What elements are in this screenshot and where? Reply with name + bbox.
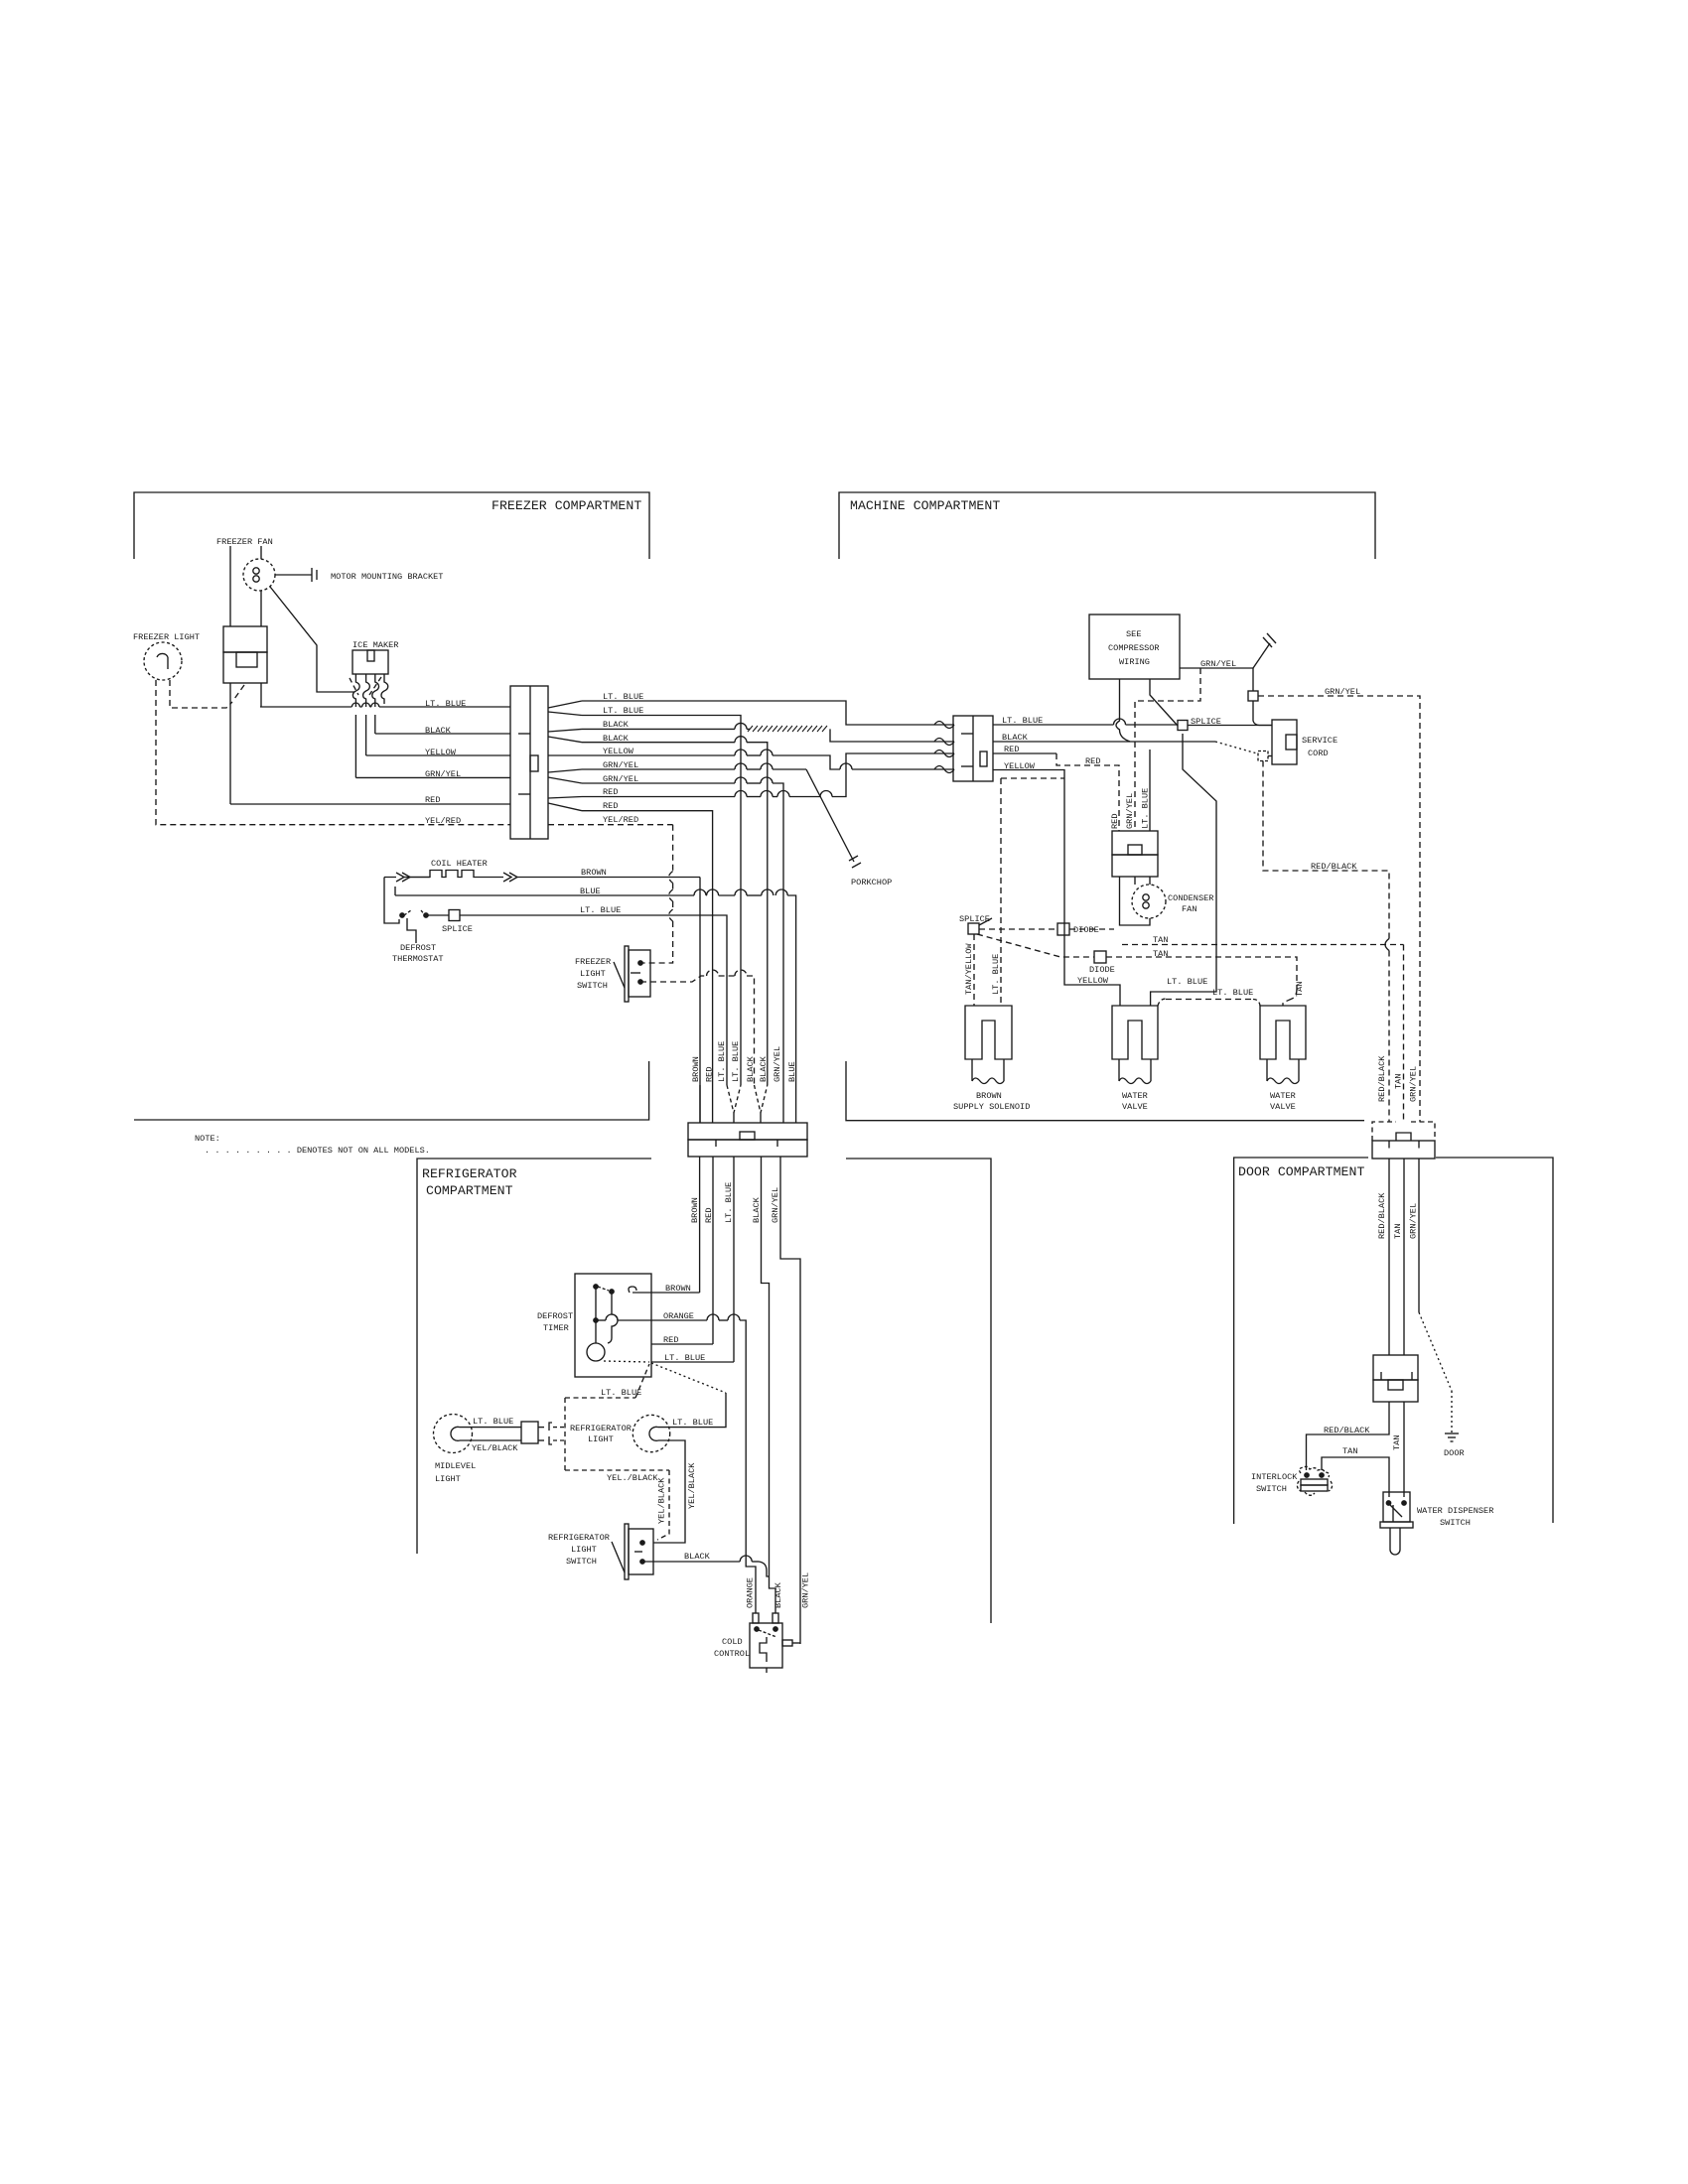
svg-text:BLUE: BLUE bbox=[787, 1061, 797, 1082]
svg-text:REFRIGERATOR: REFRIGERATOR bbox=[570, 1424, 632, 1433]
svg-text:BLACK: BLACK bbox=[684, 1552, 711, 1562]
svg-text:LT. BLUE: LT. BLUE bbox=[603, 706, 643, 716]
svg-text:YEL/BLACK: YEL/BLACK bbox=[472, 1443, 518, 1453]
svg-text:TAN: TAN bbox=[1393, 1224, 1403, 1239]
svg-text:WATER: WATER bbox=[1270, 1091, 1296, 1101]
svg-text:DEFROST: DEFROST bbox=[537, 1311, 573, 1321]
svg-text:RED: RED bbox=[1110, 814, 1120, 829]
svg-text:TAN/YELLOW: TAN/YELLOW bbox=[964, 943, 974, 995]
svg-text:RED: RED bbox=[603, 787, 618, 797]
svg-text:REFRIGERATOR: REFRIGERATOR bbox=[548, 1533, 610, 1543]
svg-text:TAN: TAN bbox=[1392, 1435, 1402, 1450]
svg-text:YEL/RED: YEL/RED bbox=[425, 816, 461, 826]
svg-text:LIGHT: LIGHT bbox=[571, 1545, 597, 1555]
svg-text:GRN/YEL: GRN/YEL bbox=[1409, 1066, 1419, 1102]
svg-text:SERVICE: SERVICE bbox=[1302, 736, 1337, 746]
svg-text:THERMOSTAT: THERMOSTAT bbox=[392, 954, 444, 964]
svg-text:CORD: CORD bbox=[1308, 749, 1329, 758]
svg-text:BLACK: BLACK bbox=[752, 1196, 762, 1223]
svg-text:. . . . . . . . . DENOTES NOT: . . . . . . . . . DENOTES NOT ON ALL MOD… bbox=[205, 1146, 430, 1156]
svg-text:BROWN: BROWN bbox=[581, 868, 607, 878]
svg-text:NOTE:: NOTE: bbox=[195, 1134, 220, 1144]
svg-text:BLACK: BLACK bbox=[746, 1055, 756, 1082]
svg-text:GRN/YEL: GRN/YEL bbox=[1325, 687, 1360, 697]
svg-text:YEL/BLACK: YEL/BLACK bbox=[657, 1477, 667, 1524]
svg-text:LT. BLUE: LT. BLUE bbox=[717, 1041, 727, 1082]
svg-text:CONTROL: CONTROL bbox=[714, 1649, 750, 1659]
svg-text:SWITCH: SWITCH bbox=[1256, 1484, 1287, 1494]
svg-text:YEL./BLACK: YEL./BLACK bbox=[607, 1473, 658, 1483]
svg-text:RED/BLACK: RED/BLACK bbox=[1311, 862, 1357, 872]
svg-text:COIL HEATER: COIL HEATER bbox=[431, 859, 488, 869]
svg-text:FAN: FAN bbox=[1182, 904, 1196, 914]
svg-text:GRN/YEL: GRN/YEL bbox=[801, 1572, 811, 1608]
svg-text:CONDENSER: CONDENSER bbox=[1168, 893, 1213, 903]
svg-text:BLUE: BLUE bbox=[580, 887, 601, 896]
svg-text:WATER DISPENSER: WATER DISPENSER bbox=[1417, 1506, 1493, 1516]
svg-text:COMPRESSOR: COMPRESSOR bbox=[1108, 643, 1160, 653]
svg-text:LT. BLUE: LT. BLUE bbox=[664, 1353, 705, 1363]
svg-text:ICE MAKER: ICE MAKER bbox=[352, 640, 398, 650]
svg-text:WIRING: WIRING bbox=[1119, 657, 1150, 667]
svg-text:GRN/YEL: GRN/YEL bbox=[1200, 659, 1236, 669]
svg-text:SEE: SEE bbox=[1126, 629, 1141, 639]
svg-text:TAN: TAN bbox=[1153, 935, 1168, 945]
svg-text:MOTOR MOUNTING BRACKET: MOTOR MOUNTING BRACKET bbox=[331, 572, 443, 582]
svg-text:LT. BLUE: LT. BLUE bbox=[991, 954, 1001, 995]
svg-text:YEL/RED: YEL/RED bbox=[603, 815, 638, 825]
svg-text:REFRIGERATOR: REFRIGERATOR bbox=[422, 1166, 517, 1181]
svg-text:VALVE: VALVE bbox=[1270, 1102, 1296, 1112]
svg-text:RED/BLACK: RED/BLACK bbox=[1377, 1192, 1387, 1239]
svg-text:DIODE: DIODE bbox=[1073, 925, 1099, 935]
svg-text:FREEZER FAN: FREEZER FAN bbox=[216, 537, 273, 547]
svg-text:SWITCH: SWITCH bbox=[566, 1557, 597, 1567]
svg-text:TAN: TAN bbox=[1295, 982, 1305, 997]
svg-text:RED/BLACK: RED/BLACK bbox=[1377, 1055, 1387, 1102]
svg-text:YELLOW: YELLOW bbox=[1077, 976, 1109, 986]
svg-text:BROWN: BROWN bbox=[690, 1197, 700, 1223]
svg-text:ORANGE: ORANGE bbox=[663, 1311, 694, 1321]
svg-text:MIDLEVEL: MIDLEVEL bbox=[435, 1461, 476, 1471]
svg-text:DIODE: DIODE bbox=[1089, 965, 1115, 975]
svg-text:FREEZER: FREEZER bbox=[575, 957, 611, 967]
svg-text:SPLICE: SPLICE bbox=[442, 924, 473, 934]
svg-text:SUPPLY SOLENOID: SUPPLY SOLENOID bbox=[953, 1102, 1030, 1112]
svg-text:LT. BLUE: LT. BLUE bbox=[580, 905, 621, 915]
svg-text:LIGHT: LIGHT bbox=[435, 1474, 461, 1484]
svg-text:BROWN: BROWN bbox=[691, 1056, 701, 1082]
svg-text:BROWN: BROWN bbox=[976, 1091, 1002, 1101]
svg-text:LT. BLUE: LT. BLUE bbox=[1212, 988, 1253, 998]
svg-text:DEFROST: DEFROST bbox=[400, 943, 436, 953]
svg-text:INTERLOCK: INTERLOCK bbox=[1251, 1472, 1298, 1482]
svg-text:TAN: TAN bbox=[1394, 1074, 1404, 1089]
svg-text:RED: RED bbox=[1085, 756, 1100, 766]
svg-text:COMPARTMENT: COMPARTMENT bbox=[426, 1183, 513, 1198]
svg-text:BLACK: BLACK bbox=[603, 720, 630, 730]
svg-text:RED: RED bbox=[704, 1208, 714, 1223]
svg-text:RED: RED bbox=[603, 801, 618, 811]
svg-text:LIGHT: LIGHT bbox=[580, 969, 606, 979]
svg-text:FREEZER COMPARTMENT: FREEZER COMPARTMENT bbox=[492, 498, 641, 513]
svg-text:TIMER: TIMER bbox=[543, 1323, 569, 1333]
svg-text:SWITCH: SWITCH bbox=[577, 981, 608, 991]
svg-text:GRN/YEL: GRN/YEL bbox=[773, 1046, 782, 1082]
svg-text:WATER: WATER bbox=[1122, 1091, 1148, 1101]
svg-text:COLD: COLD bbox=[722, 1637, 743, 1647]
svg-text:GRN/YEL: GRN/YEL bbox=[771, 1187, 780, 1223]
svg-text:LT. BLUE: LT. BLUE bbox=[672, 1418, 713, 1428]
svg-text:ORANGE: ORANGE bbox=[746, 1577, 756, 1608]
svg-text:LT. BLUE: LT. BLUE bbox=[601, 1388, 641, 1398]
svg-text:DOOR COMPARTMENT: DOOR COMPARTMENT bbox=[1238, 1164, 1364, 1179]
svg-text:BROWN: BROWN bbox=[665, 1284, 691, 1294]
svg-text:LT. BLUE: LT. BLUE bbox=[1141, 788, 1151, 829]
svg-text:GRN/YEL: GRN/YEL bbox=[1409, 1203, 1419, 1239]
svg-text:LIGHT: LIGHT bbox=[588, 1434, 614, 1444]
svg-text:RED: RED bbox=[705, 1067, 715, 1082]
svg-text:RED: RED bbox=[663, 1335, 678, 1345]
svg-text:SWITCH: SWITCH bbox=[1440, 1518, 1471, 1528]
svg-text:MACHINE COMPARTMENT: MACHINE COMPARTMENT bbox=[850, 498, 1000, 513]
svg-text:YEL/BLACK: YEL/BLACK bbox=[687, 1462, 697, 1509]
svg-text:LT. BLUE: LT. BLUE bbox=[1167, 977, 1207, 987]
svg-text:FREEZER LIGHT: FREEZER LIGHT bbox=[133, 632, 200, 642]
svg-text:VALVE: VALVE bbox=[1122, 1102, 1148, 1112]
svg-text:LT. BLUE: LT. BLUE bbox=[425, 699, 466, 709]
svg-text:DOOR: DOOR bbox=[1444, 1448, 1465, 1458]
svg-text:LT. BLUE: LT. BLUE bbox=[473, 1417, 513, 1427]
svg-text:LT. BLUE: LT. BLUE bbox=[724, 1182, 734, 1223]
svg-text:RED/BLACK: RED/BLACK bbox=[1324, 1426, 1370, 1435]
svg-text:PORKCHOP: PORKCHOP bbox=[851, 878, 892, 887]
svg-text:GRN/YEL: GRN/YEL bbox=[1125, 793, 1135, 829]
svg-text:LT. BLUE: LT. BLUE bbox=[731, 1041, 741, 1082]
svg-text:BLACK: BLACK bbox=[759, 1055, 769, 1082]
svg-text:TAN: TAN bbox=[1342, 1446, 1357, 1456]
